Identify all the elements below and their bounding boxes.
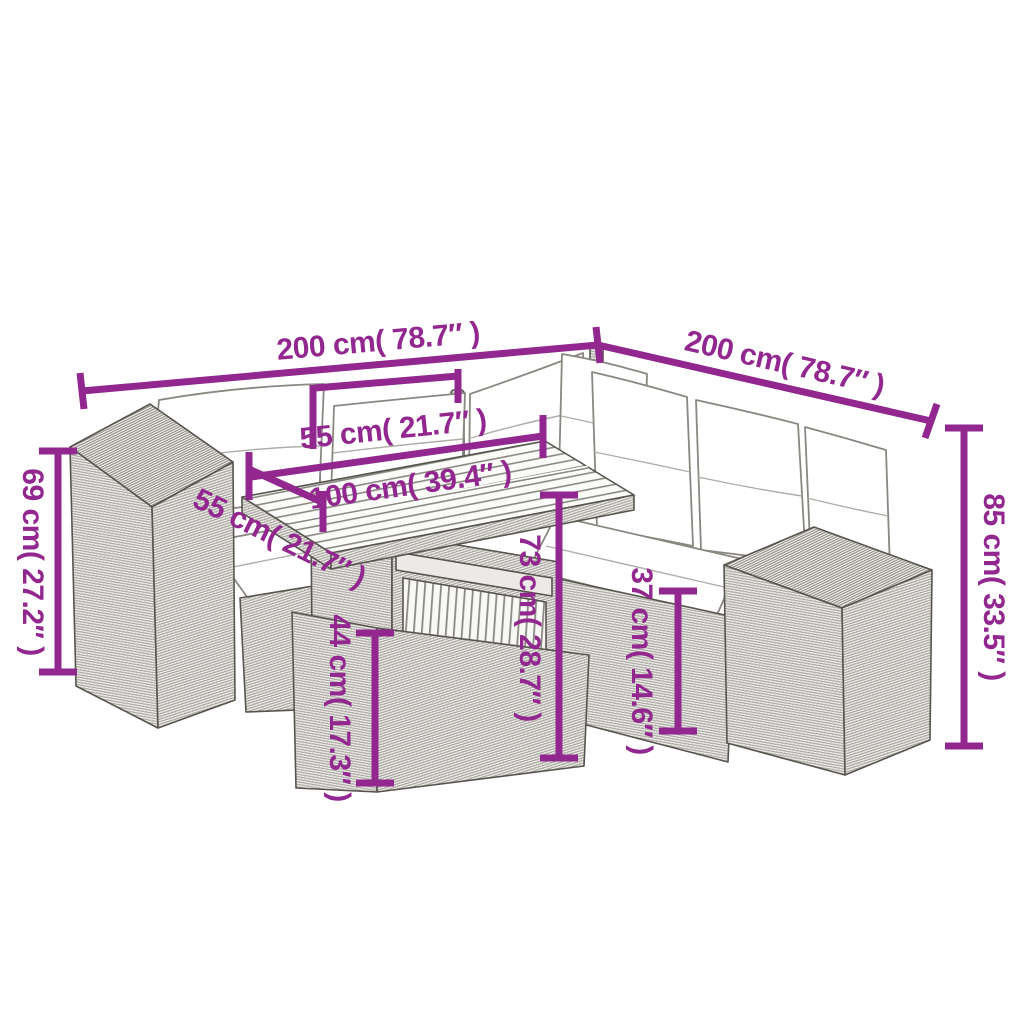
dimension-armrest-height: 69 cm( 27.2″ ) xyxy=(16,451,77,672)
back-cushion xyxy=(592,372,693,546)
dimension-tick xyxy=(80,373,84,409)
dimension-label: 44 cm( 17.3″ ) xyxy=(323,614,356,801)
dimension-label: 37 cm( 14.6″ ) xyxy=(625,567,658,754)
left-armrest xyxy=(70,404,235,728)
dimension-total-height: 85 cm( 33.5″ ) xyxy=(945,428,1010,746)
product-dimension-page: 200 cm( 78.7″ ) 200 cm( 78.7″ ) 55 cm( 2… xyxy=(0,0,1024,1024)
dimension-label: 73 cm( 28.7″ ) xyxy=(513,534,546,721)
dimension-label: 69 cm( 27.2″ ) xyxy=(16,468,49,655)
dimension-line xyxy=(315,376,458,388)
dimension-label: 85 cm( 33.5″ ) xyxy=(977,493,1010,680)
right-armrest xyxy=(724,527,932,775)
furniture-dimension-diagram: 200 cm( 78.7″ ) 200 cm( 78.7″ ) 55 cm( 2… xyxy=(0,0,1024,1024)
